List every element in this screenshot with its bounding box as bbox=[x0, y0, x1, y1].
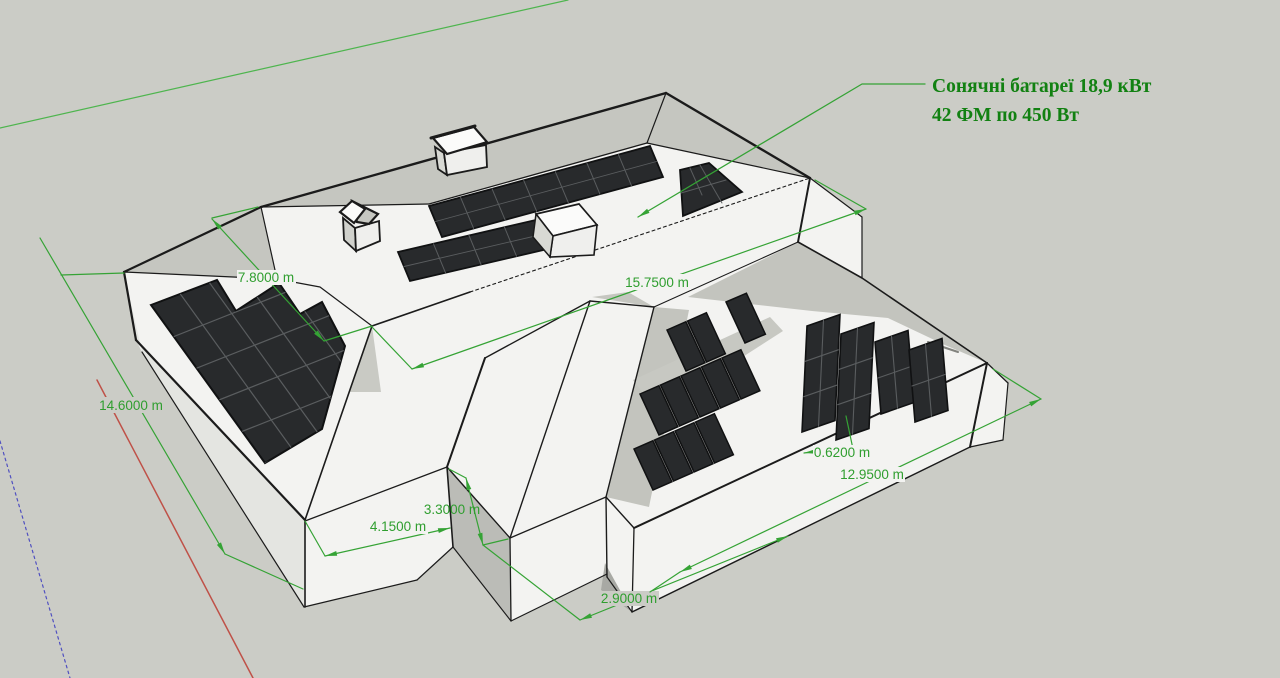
svg-text:12.9500 m: 12.9500 m bbox=[840, 467, 904, 482]
svg-text:14.6000 m: 14.6000 m bbox=[99, 398, 163, 413]
svg-text:42 ФМ по 450 Вт: 42 ФМ по 450 Вт bbox=[932, 105, 1079, 126]
svg-text:2.9000 m: 2.9000 m bbox=[601, 591, 657, 606]
svg-text:0.6200 m: 0.6200 m bbox=[814, 445, 870, 460]
svg-text:Сонячні батареї 18,9 кВт: Сонячні батареї 18,9 кВт bbox=[932, 76, 1152, 97]
svg-text:3.3000 m: 3.3000 m bbox=[424, 502, 480, 517]
svg-text:15.7500 m: 15.7500 m bbox=[625, 275, 689, 290]
svg-text:7.8000 m: 7.8000 m bbox=[238, 270, 294, 285]
svg-text:4.1500 m: 4.1500 m bbox=[370, 519, 426, 534]
